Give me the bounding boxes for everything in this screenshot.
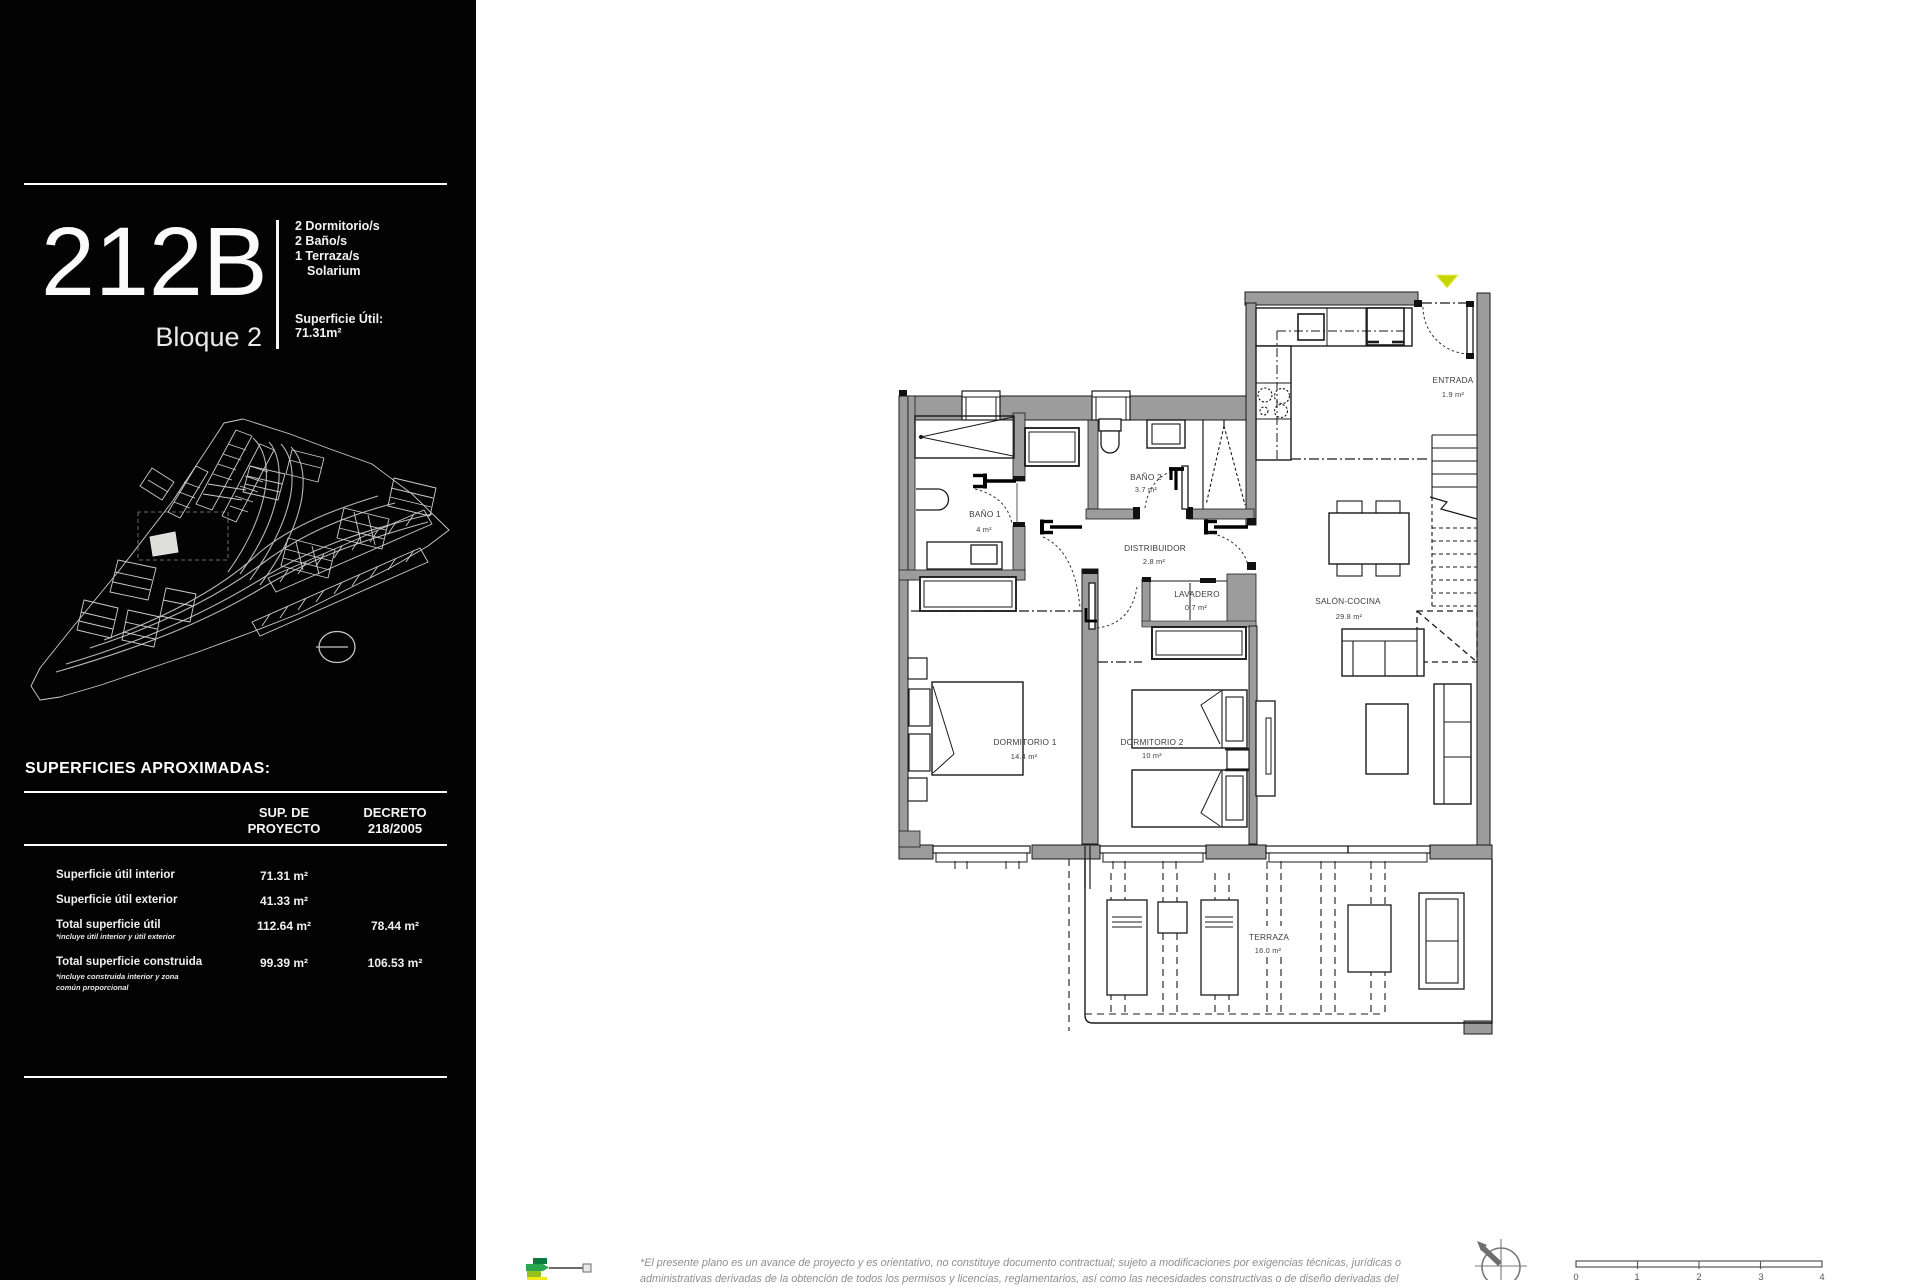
svg-text:0.7 m²: 0.7 m² [1185,603,1207,612]
svg-text:14.4 m²: 14.4 m² [1011,752,1038,761]
svg-text:BAÑO 2: BAÑO 2 [1130,472,1162,482]
svg-text:LAVADERO: LAVADERO [1174,589,1220,599]
svg-text:3.7 m²: 3.7 m² [1135,485,1157,494]
svg-text:BAÑO 1: BAÑO 1 [969,509,1001,519]
svg-text:ENTRADA: ENTRADA [1432,375,1473,385]
svg-text:4 m²: 4 m² [976,525,992,534]
svg-text:DISTRIBUIDOR: DISTRIBUIDOR [1124,543,1186,553]
svg-text:0: 0 [1573,1272,1578,1280]
svg-text:TERRAZA: TERRAZA [1249,932,1289,942]
svg-text:1: 1 [1634,1272,1639,1280]
svg-text:10 m²: 10 m² [1142,751,1162,760]
svg-text:3: 3 [1758,1272,1763,1280]
svg-text:2.8 m²: 2.8 m² [1143,557,1165,566]
svg-text:SALÓN-COCINA: SALÓN-COCINA [1315,596,1381,606]
svg-text:2: 2 [1696,1272,1701,1280]
svg-text:DORMITORIO 2: DORMITORIO 2 [1120,737,1183,747]
svg-text:29.8 m²: 29.8 m² [1336,612,1363,621]
svg-text:4: 4 [1819,1272,1824,1280]
svg-text:1.9 m²: 1.9 m² [1442,390,1464,399]
svg-text:DORMITORIO 1: DORMITORIO 1 [993,737,1056,747]
svg-text:16.0 m²: 16.0 m² [1255,946,1282,955]
